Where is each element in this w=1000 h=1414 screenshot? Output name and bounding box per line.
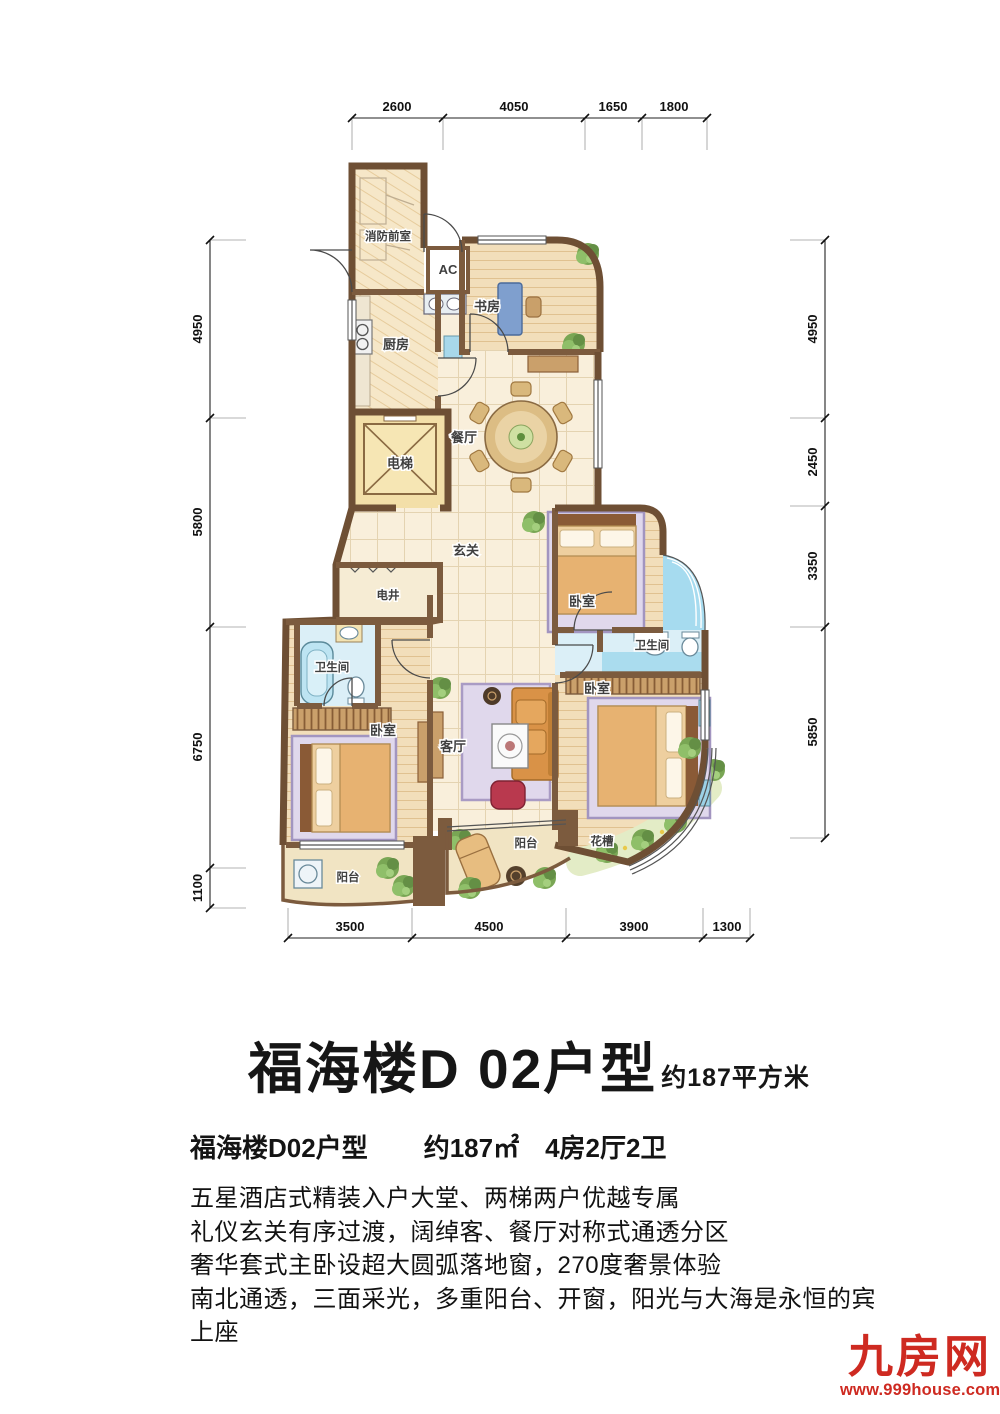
logo-url: www.999house.com [840, 1381, 1000, 1400]
room-label-elevator: 电梯 [387, 456, 413, 471]
description-line: 礼仪玄关有序过渡，阔绰客、餐厅对称式通透分区 [190, 1216, 890, 1250]
dim-top-3: 1800 [660, 99, 689, 114]
description-line: 南北通透，三面采光，多重阳台、开窗，阳光与大海是永恒的宾 [190, 1283, 890, 1317]
elevator-cab [364, 416, 436, 494]
dim-chain-left: 4950 5800 6750 1100 [190, 236, 246, 912]
dim-left-0: 4950 [190, 315, 205, 344]
dim-chain-top: 2600 4050 1650 1800 [348, 99, 711, 150]
room-label-study: 书房 [474, 299, 500, 314]
room-label-shaft: 电井 [377, 588, 400, 602]
dim-top-0: 2600 [383, 99, 412, 114]
summary-row: 福海楼D02户型 约187㎡ 4房2厅2卫 [190, 1128, 666, 1165]
dim-bottom-2: 3900 [620, 919, 649, 934]
title-block: 福海楼D 02户型 约187平方米 [248, 1038, 810, 1101]
room-label-kitchen: 厨房 [383, 337, 409, 352]
room-label-bedroom-left: 卧室 [370, 723, 396, 738]
dim-top-2: 1650 [599, 99, 628, 114]
dim-bottom-1: 4500 [475, 919, 504, 934]
dim-chain-right: 4950 2450 3350 5850 [790, 236, 829, 842]
study-window [478, 236, 546, 244]
dim-top-1: 4050 [500, 99, 529, 114]
description-line: 五星酒店式精装入户大堂、两梯两户优越专属 [190, 1182, 890, 1216]
floor-plan: 消防前室 AC 厨房 书房 餐厅 电梯 玄关 电井 卫生间 卧室 客厅 卧室 卫… [0, 0, 1000, 1000]
room-label-balcony-main: 阳台 [515, 836, 538, 850]
floor-plan-svg: 消防前室 AC 厨房 书房 餐厅 电梯 玄关 电井 卫生间 卧室 客厅 卧室 卫… [0, 0, 1000, 1000]
room-label-bedroom-top: 卧室 [569, 594, 595, 609]
dim-right-1: 2450 [805, 448, 820, 477]
dim-bottom-0: 3500 [336, 919, 365, 934]
title-area-suffix: 约187平方米 [661, 1058, 810, 1094]
master-window [701, 690, 709, 740]
bedroom-left-window [300, 841, 404, 849]
dim-left-2: 6750 [190, 733, 205, 762]
dining-window [594, 380, 602, 468]
dim-bottom-3: 1300 [713, 919, 742, 934]
description-block: 五星酒店式精装入户大堂、两梯两户优越专属 礼仪玄关有序过渡，阔绰客、餐厅对称式通… [190, 1182, 890, 1350]
room-label-hall: 玄关 [453, 543, 479, 558]
room-label-ac: AC [439, 262, 458, 277]
logo-name: 九房网 [840, 1334, 1000, 1379]
room-label-bath-right: 卫生间 [635, 638, 670, 652]
page-title: 福海楼D 02户型 [248, 1038, 657, 1101]
dim-chain-bottom: 3500 4500 3900 1300 [284, 908, 754, 942]
dim-left-3: 1100 [190, 874, 205, 902]
hall-cabinet [528, 356, 578, 372]
flyer-page: 消防前室 AC 厨房 书房 餐厅 电梯 玄关 电井 卫生间 卧室 客厅 卧室 卫… [0, 0, 1000, 1414]
watermark-logo: 九房网 www.999house.com [840, 1334, 1000, 1400]
dim-right-3: 5850 [805, 718, 820, 747]
room-label-balcony-left: 阳台 [337, 870, 360, 884]
summary-unit-name: 福海楼D02户型 [190, 1128, 368, 1165]
summary-layout: 4房2厅2卫 [545, 1128, 666, 1165]
room-label-dining: 餐厅 [450, 430, 477, 445]
room-label-living: 客厅 [440, 739, 466, 754]
room-label-fire-lobby: 消防前室 [365, 229, 411, 243]
room-label-bath-left: 卫生间 [315, 660, 350, 674]
description-line: 奢华套式主卧设超大圆弧落地窗，270度奢景体验 [190, 1249, 890, 1283]
dim-left-1: 5800 [190, 508, 205, 537]
dim-right-0: 4950 [805, 315, 820, 344]
kitchen-window [348, 300, 356, 340]
room-label-planter: 花槽 [591, 834, 614, 848]
room-label-bedroom-master: 卧室 [584, 681, 610, 696]
summary-area: 约187㎡ [424, 1128, 519, 1165]
description-line: 上座 [190, 1316, 890, 1350]
dim-right-2: 3350 [805, 552, 820, 581]
